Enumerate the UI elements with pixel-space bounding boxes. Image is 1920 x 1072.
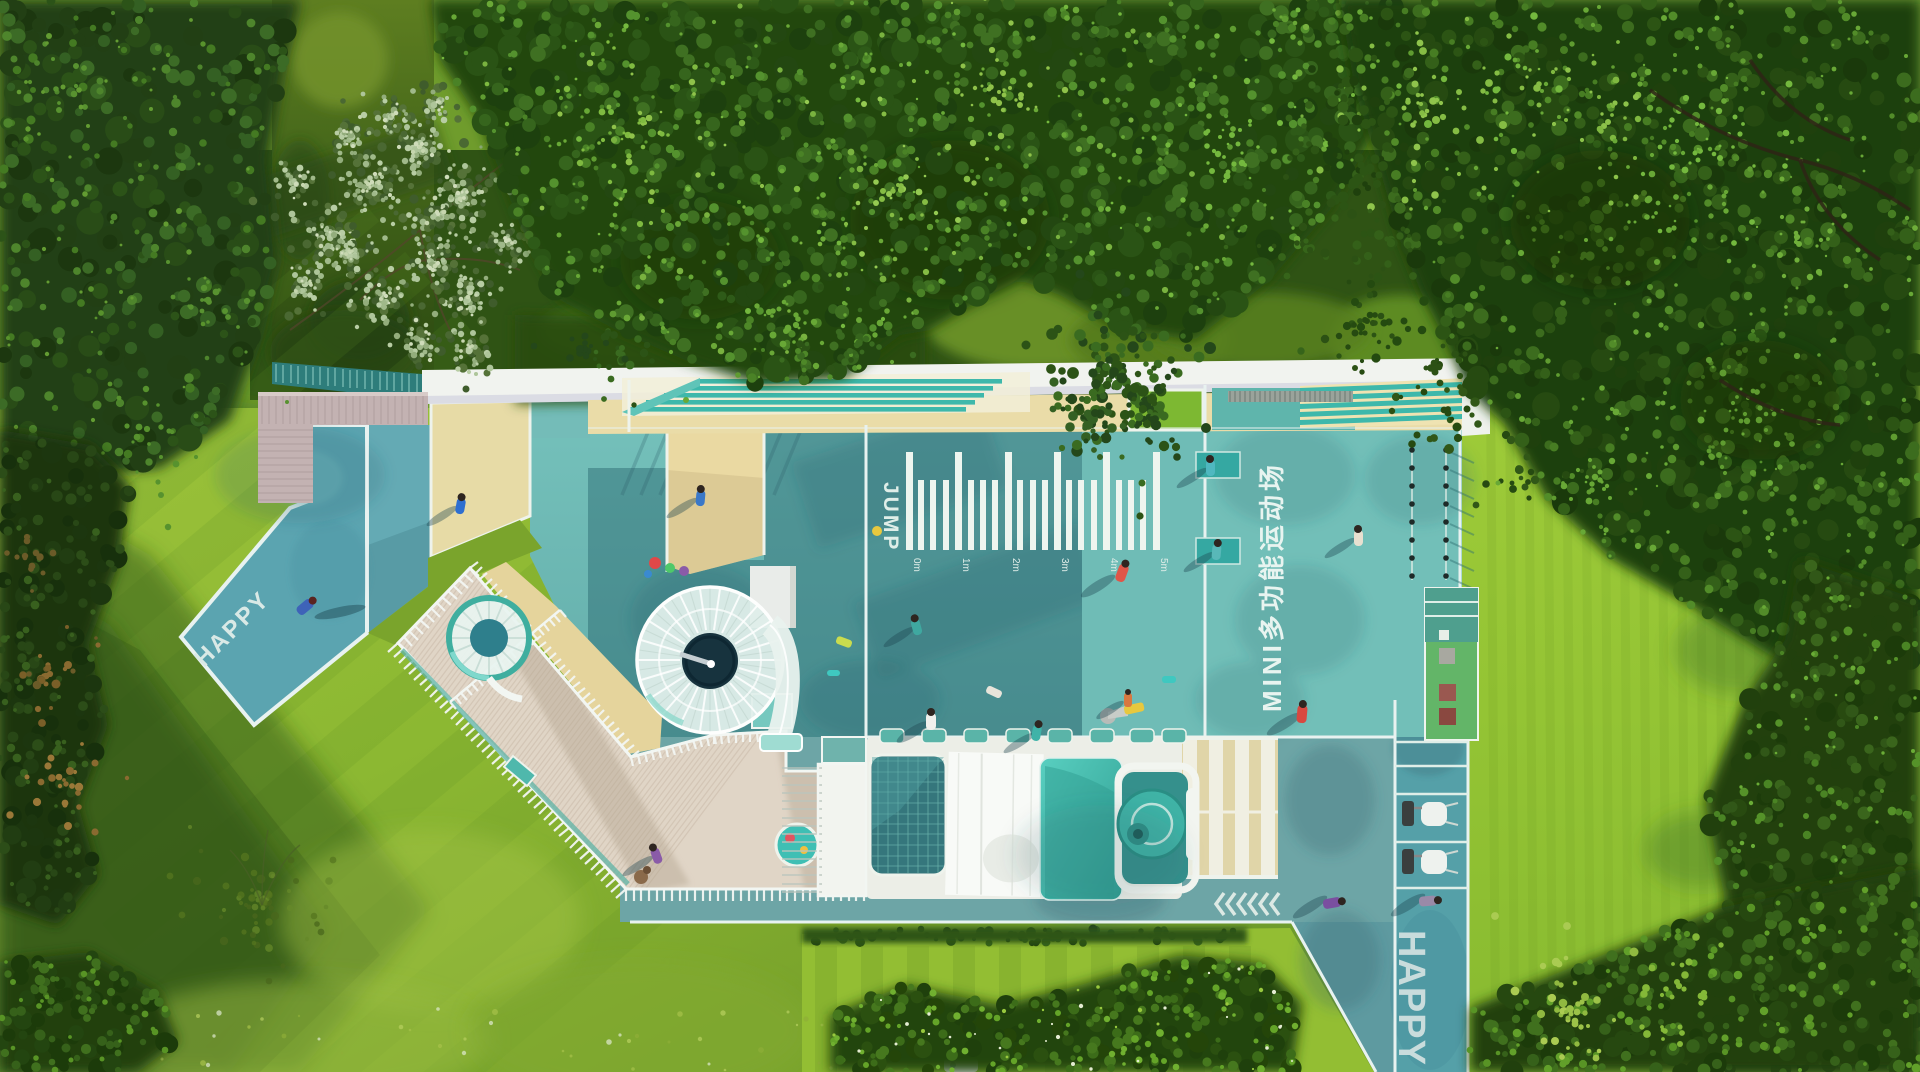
svg-text:MINI多功能运动场: MINI多功能运动场	[1257, 461, 1287, 712]
svg-text:1m: 1m	[960, 558, 971, 572]
svg-text:0m: 0m	[911, 558, 922, 572]
svg-text:JUMP: JUMP	[879, 482, 902, 552]
svg-text:4m: 4m	[1108, 558, 1119, 572]
svg-text:3m: 3m	[1059, 558, 1070, 572]
svg-text:2m: 2m	[1010, 558, 1021, 572]
svg-text:5m: 5m	[1158, 558, 1169, 572]
